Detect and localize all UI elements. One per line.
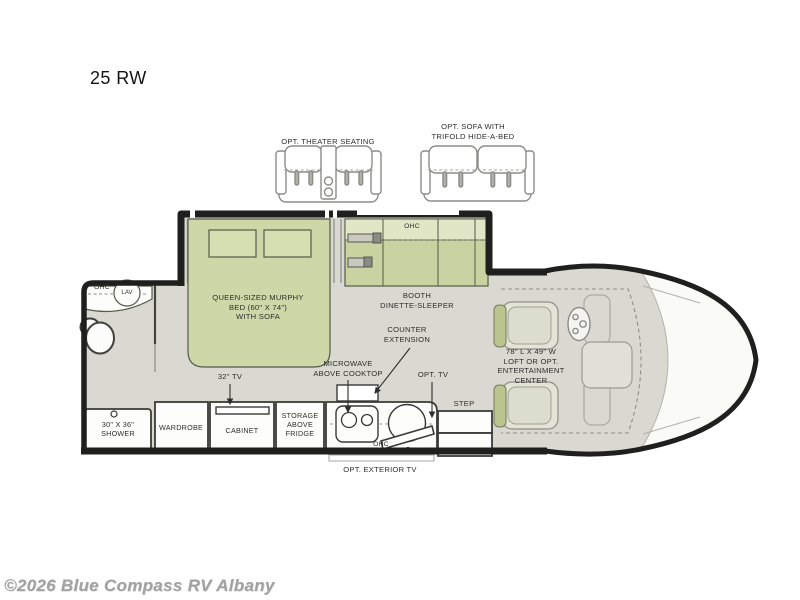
window-band [357,211,459,216]
microwave-box [337,385,378,401]
booth-ohc-label: OHC [404,223,420,232]
murphy-bed-label: QUEEN-SIZED MURPHY BED (60" X 74") WITH … [212,293,303,322]
lav-label: LAV [121,290,132,298]
theater-seating-label: OPT. THEATER SEATING [281,137,375,147]
booth-dinette-label: BOOTH DINETTE-SLEEPER [380,291,454,310]
tv32-label: 32" TV [218,372,242,382]
rv-floorplan-page: 25 RW OPT. THEATER SEATING OPT. SOFA WIT… [0,0,800,600]
steering-wheel-icon [568,308,590,341]
watermark: ©2026 Blue Compass RV Albany [4,576,275,596]
kitchen-ohc-label: OHC [373,441,389,450]
swivel-seat-front [494,302,558,349]
theater-seating-icon [276,146,381,202]
cabinet-label: CABINET [226,426,259,435]
shower-label: 30" X 36" SHOWER [101,420,135,438]
loft-label: 78" L X 49" W LOFT OR OPT. ENTERTAINMENT… [497,347,564,386]
step-label: STEP [454,399,475,409]
storage-fridge-label: STORAGE ABOVE FRIDGE [282,411,319,439]
pillow [209,230,256,257]
page-title: 25 RW [90,68,147,89]
swivel-seat-rear [494,382,558,429]
engine-console [582,342,632,388]
exterior-tv-label: OPT. EXTERIOR TV [343,465,416,475]
microwave-label: MICROWAVE ABOVE COOKTOP [313,359,382,378]
sofa-label: OPT. SOFA WITH TRIFOLD HIDE-A-BED [432,122,515,141]
tv-32-icon [216,407,269,414]
opt-tv-label: OPT. TV [418,370,448,380]
sofa-hide-a-bed-icon [421,146,534,201]
wardrobe-label: WARDROBE [159,423,203,432]
pillow [264,230,311,257]
bath-ohc-label: OHC [94,284,110,293]
counter-extension-label: COUNTER EXTENSION [384,325,430,344]
entry-sill [329,455,434,461]
